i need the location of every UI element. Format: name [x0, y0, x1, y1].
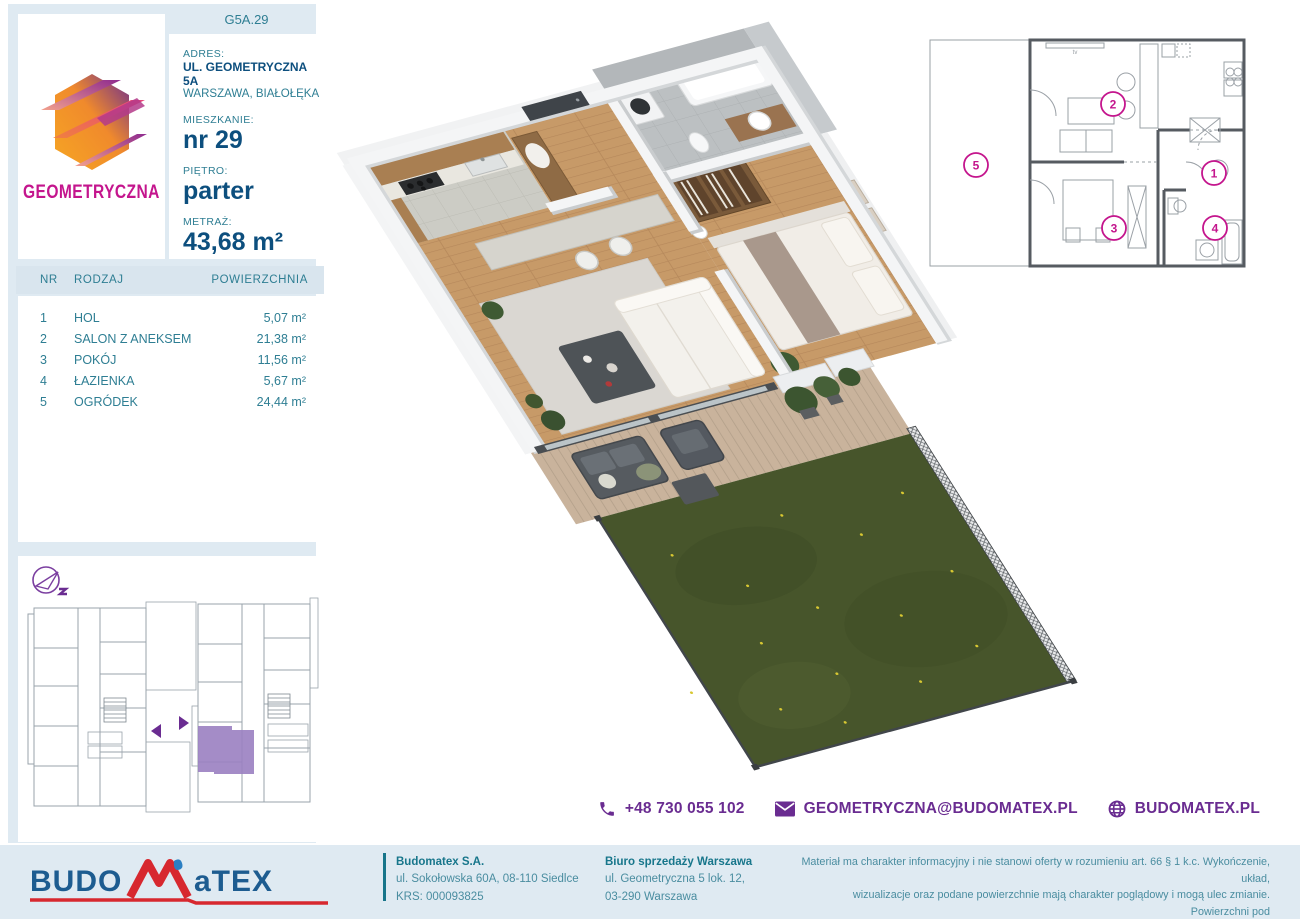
arrow-right-icon	[179, 716, 189, 730]
room-number-3: 3	[1111, 222, 1118, 236]
footer: BUDO aTEX Budomatex S.A. ul. Sokołowska …	[0, 845, 1300, 919]
row-area: 24,44 m²	[236, 392, 322, 413]
email-address: GEOMETRYCZNA@BUDOMATEX.PL	[804, 800, 1078, 818]
legal-disclaimer: Materiał ma charakter informacyjny i nie…	[800, 854, 1270, 919]
row-nr: 2	[18, 329, 74, 350]
col-nr: NR	[16, 274, 74, 286]
address-city: WARSZAWA, BIAŁOŁĘKA	[183, 88, 324, 100]
table-row: 3 POKÓJ 11,56 m²	[18, 350, 322, 371]
area-value: 43,68 m²	[183, 228, 324, 257]
rooms-table-header: NR RODZAJ POWIERZCHNIA	[16, 266, 324, 294]
office-address-1: ul. Geometryczna 5 lok. 12,	[605, 871, 752, 888]
offer-page: GEOMETRYCZNA G5A.29 ADRES: UL. GEOMETRYC…	[0, 0, 1300, 919]
office-name: Biuro sprzedaży Warszawa	[605, 854, 752, 871]
phone-number: +48 730 055 102	[625, 800, 745, 818]
brand-text-budo: BUDO	[30, 865, 122, 898]
contact-bar: +48 730 055 102 GEOMETRYCZNA@BUDOMATEX.P…	[598, 800, 1260, 818]
building-plan-other-floor	[28, 602, 196, 812]
sales-office-block: Biuro sprzedaży Warszawa ul. Geometryczn…	[605, 854, 752, 906]
room-number-1: 1	[1211, 167, 1218, 181]
row-nr: 1	[18, 308, 74, 329]
table-row: 1 HOL 5,07 m²	[18, 308, 322, 329]
arrow-left-icon	[151, 724, 161, 738]
row-name: SALON Z ANEKSEM	[74, 329, 236, 350]
footer-divider	[383, 853, 386, 901]
phone-icon	[598, 800, 616, 818]
floorplan-2d: 5 2 1 3 4 tv	[928, 30, 1258, 275]
company-name: Budomatex S.A.	[396, 854, 579, 871]
row-nr: 3	[18, 350, 74, 371]
company-krs: KRS: 000093825	[396, 889, 579, 906]
room-number-4: 4	[1212, 222, 1219, 236]
row-name: POKÓJ	[74, 350, 236, 371]
row-area: 11,56 m²	[236, 350, 322, 371]
table-row: 5 OGRÓDEK 24,44 m²	[18, 392, 322, 413]
apartment-info-card: ADRES: UL. GEOMETRYCZNA 5A WARSZAWA, BIA…	[169, 34, 324, 259]
website-url: BUDOMATEX.PL	[1135, 800, 1260, 818]
brand-text-atex: aTEX	[194, 865, 273, 898]
area-label: METRAŻ:	[183, 216, 324, 228]
logo-wordmark: GEOMETRYCZNA	[23, 182, 160, 204]
company-address: ul. Sokołowska 60A, 08-110 Siedlce	[396, 871, 579, 888]
building-plans-panel	[18, 556, 322, 842]
disclaimer-line: wizualizacje oraz podane powierzchnie ma…	[800, 887, 1270, 919]
table-row: 2 SALON Z ANEKSEM 21,38 m²	[18, 329, 322, 350]
apartment-number: nr 29	[183, 126, 324, 155]
row-nr: 4	[18, 371, 74, 392]
globe-icon	[1108, 800, 1126, 818]
tv-label: tv	[1073, 50, 1078, 56]
row-area: 21,38 m²	[236, 329, 322, 350]
office-address-2: 03-290 Warszawa	[605, 889, 752, 906]
row-name: ŁAZIENKA	[74, 371, 236, 392]
compass-icon	[33, 567, 67, 594]
address-label: ADRES:	[183, 48, 324, 60]
email-link[interactable]: GEOMETRYCZNA@BUDOMATEX.PL	[775, 800, 1078, 818]
col-rodzaj: RODZAJ	[74, 274, 211, 286]
table-row: 4 ŁAZIENKA 5,67 m²	[18, 371, 322, 392]
row-nr: 5	[18, 392, 74, 413]
row-area: 5,67 m²	[236, 371, 322, 392]
company-block: Budomatex S.A. ul. Sokołowska 60A, 08-11…	[396, 854, 579, 906]
left-panel: GEOMETRYCZNA G5A.29 ADRES: UL. GEOMETRYC…	[8, 4, 316, 843]
brand-underline	[30, 900, 328, 903]
rooms-table: 1 HOL 5,07 m² 2 SALON Z ANEKSEM 21,38 m²…	[18, 296, 322, 542]
developer-logo: GEOMETRYCZNA	[18, 14, 165, 259]
disclaimer-line: Materiał ma charakter informacyjny i nie…	[800, 854, 1270, 887]
website-link[interactable]: BUDOMATEX.PL	[1108, 800, 1260, 818]
brand-droplet	[174, 859, 183, 870]
row-name: HOL	[74, 308, 236, 329]
geometryczna-logo-icon	[37, 70, 147, 174]
address-street: UL. GEOMETRYCZNA 5A	[183, 60, 324, 88]
unit-code: G5A.29	[169, 12, 324, 27]
budomatex-logo: BUDO aTEX	[28, 857, 358, 907]
phone-link[interactable]: +48 730 055 102	[598, 800, 745, 818]
room-number-2: 2	[1110, 98, 1117, 112]
row-area: 5,07 m²	[236, 308, 322, 329]
col-powierzchnia: POWIERZCHNIA	[211, 274, 324, 286]
highlighted-unit	[198, 726, 254, 774]
apartment-label: MIESZKANIE:	[183, 114, 324, 126]
room-number-markers: 5 2 1 3 4	[964, 92, 1227, 240]
floor-label: PIĘTRO:	[183, 165, 324, 177]
mail-icon	[775, 801, 795, 817]
room-number-5: 5	[973, 159, 980, 173]
floor-value: parter	[183, 177, 324, 206]
row-name: OGRÓDEK	[74, 392, 236, 413]
